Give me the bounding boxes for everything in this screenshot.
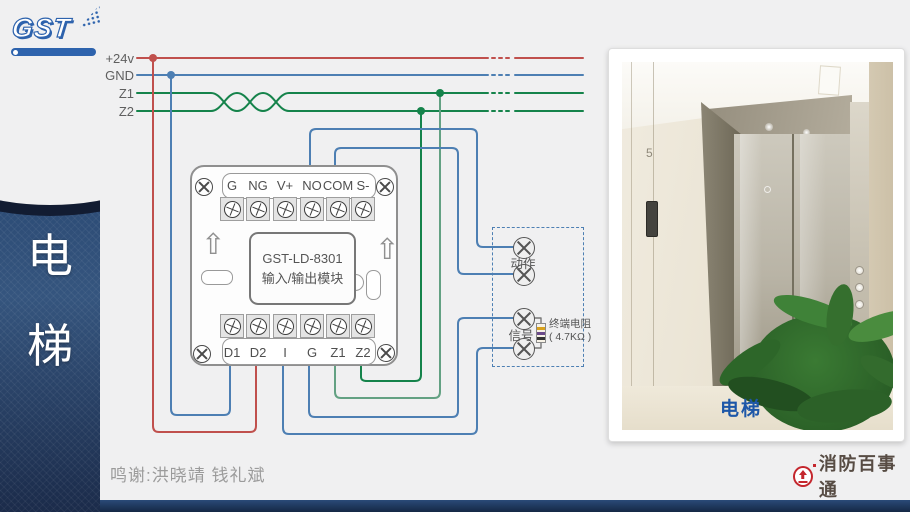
- terminal-label-g: G: [227, 178, 237, 193]
- wire-z2-bus: [137, 93, 583, 111]
- wire-z1-bus: [137, 93, 583, 111]
- terminal-label-i: I: [283, 345, 287, 360]
- terminal-screw-icon: [246, 314, 270, 338]
- terminal-label-no: NO: [302, 178, 322, 193]
- call-button-icon: [855, 300, 864, 309]
- door-keyhole: [764, 186, 771, 193]
- terminal-label-z2: Z2: [355, 345, 370, 360]
- module-model: GST-LD-8301: [262, 249, 342, 269]
- terminal-screw-icon: [273, 314, 297, 338]
- terminal-screw-icon: [220, 314, 244, 338]
- elevator-photo: 5 电梯: [622, 62, 893, 430]
- terminal-screw-icon: [326, 197, 350, 221]
- terminal-screw-icon: [300, 197, 324, 221]
- bus-label-z1: Z1: [98, 86, 134, 101]
- junction-dot-z1: [436, 89, 444, 97]
- gst-logo-text: GST: [10, 13, 72, 44]
- call-button-icon: [855, 266, 864, 275]
- terminal-label-com: COM: [323, 178, 353, 193]
- wall-seam: [631, 62, 632, 392]
- mounting-screw-icon: [189, 341, 214, 366]
- bottom-terminal-strip: [222, 338, 376, 365]
- photo-ceiling-sign: [818, 65, 841, 95]
- mounting-screw-icon: [372, 174, 397, 199]
- elevator-photo-card: 5 电梯: [608, 48, 905, 442]
- terminal-screw-icon: [351, 197, 375, 221]
- junction-dot-z2: [417, 107, 425, 115]
- bus-label-z2: Z2: [98, 104, 134, 119]
- module-name: 输入/输出模块: [262, 269, 344, 289]
- terminal-label-ng: NG: [248, 178, 268, 193]
- wire-z-bus-break: [492, 93, 511, 111]
- module-nameplate: GST-LD-8301 输入/输出模块: [249, 232, 356, 305]
- brand-logo: 消防百事通: [793, 463, 910, 489]
- terminal-label-z1: Z1: [330, 345, 345, 360]
- terminal-label-d1: D1: [224, 345, 241, 360]
- io-module: G NG V+ NO COM S- ⇧ ⇧ GST-LD-8301 输入/输出模…: [190, 165, 398, 366]
- gst-logo-bar: [11, 48, 96, 56]
- credits-text: 鸣谢:洪晓靖 钱礼斌: [110, 461, 265, 486]
- call-button-icon: [855, 283, 864, 292]
- terminal-screw-icon: [246, 197, 270, 221]
- resistor-value: ( 4.7KΩ ): [549, 331, 591, 343]
- hall-indicator-panel: [646, 201, 658, 237]
- elevator-terminal-box: [492, 227, 584, 367]
- gst-logo: GST: [10, 13, 98, 59]
- bus-label-gnd: GND: [98, 68, 134, 83]
- terminal-label-g2: G: [307, 345, 317, 360]
- ceiling-light-icon: [765, 123, 773, 131]
- terminal-screw-icon: [220, 197, 244, 221]
- orientation-arrow-icon: ⇧: [201, 231, 225, 260]
- terminal-label-sminus: S-: [357, 178, 370, 193]
- junction-dot-gnd: [167, 71, 175, 79]
- bottom-bar: [0, 500, 910, 512]
- photo-caption: 电梯: [720, 394, 762, 421]
- terminal-screw-icon: [300, 314, 324, 338]
- junction-dot-24v: [149, 54, 157, 62]
- brand-name: 消防百事通: [819, 450, 910, 502]
- terminal-screw-icon: [351, 314, 375, 338]
- terminal-screw-icon: [326, 314, 350, 338]
- sidebar: GST 电 梯: [0, 0, 100, 512]
- mounting-screw-icon: [373, 340, 398, 365]
- terminal-resistor-icon: [536, 323, 546, 343]
- floor-number-sign: 5: [646, 146, 653, 160]
- action-label: 动作: [501, 253, 545, 272]
- bus-label-24v: +24v: [98, 51, 134, 66]
- orientation-arrow-icon: ⇧: [375, 236, 399, 265]
- mounting-screw-icon: [191, 174, 216, 199]
- terminal-label-vplus: V+: [277, 178, 293, 193]
- module-slot: [366, 270, 381, 300]
- terminal-label-d2: D2: [250, 345, 267, 360]
- slide-title-vertical: 电 梯: [0, 212, 100, 391]
- slide: +24v GND Z1 Z2 G NG V+ NO COM S- ⇧ ⇧ GST…: [0, 0, 910, 512]
- fire-hydrant-icon: [793, 466, 813, 487]
- module-slot: [201, 270, 233, 285]
- resistor-name: 终端电阻: [549, 316, 591, 331]
- terminal-screw-icon: [273, 197, 297, 221]
